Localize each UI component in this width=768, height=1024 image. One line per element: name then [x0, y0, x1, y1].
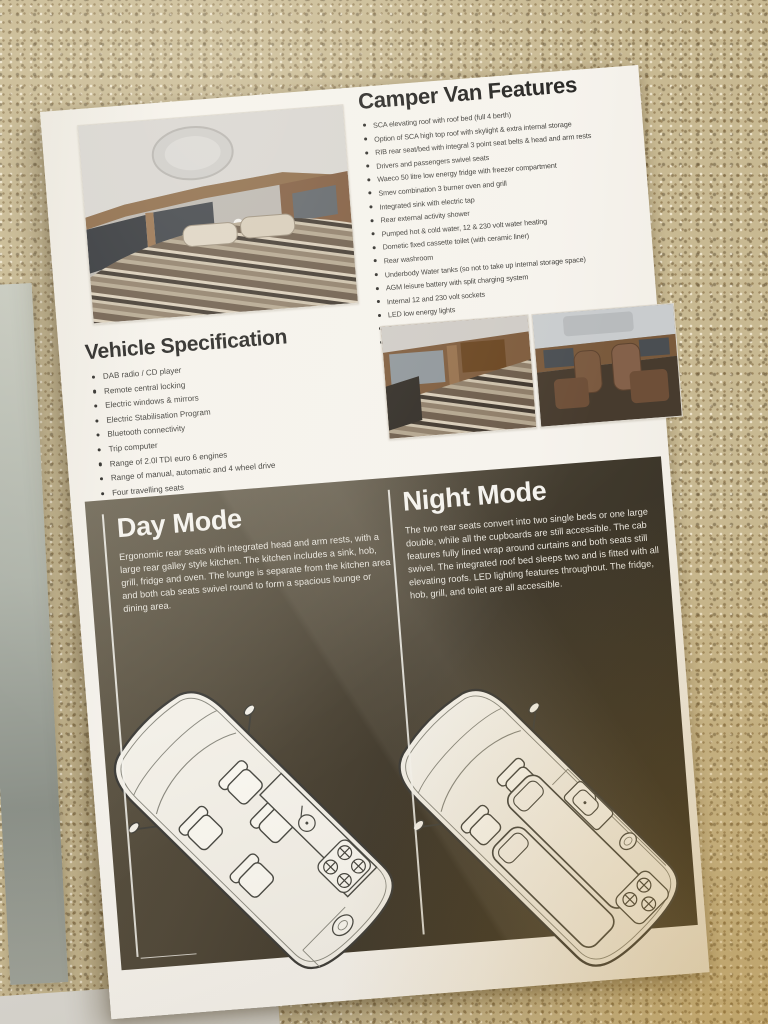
night-mode-section: Night Mode The two rear seats convert in… — [402, 467, 666, 603]
interior-bed-side-photo — [380, 314, 537, 439]
night-mode-floorplan-diagram — [354, 644, 726, 1013]
day-mode-section: Day Mode Ergonomic rear seats with integ… — [116, 492, 399, 617]
brochure-page: Camper Van Features SCA elevating roof w… — [40, 65, 710, 1019]
interior-roof-bed-photo — [77, 104, 359, 324]
pillow — [182, 222, 237, 247]
day-mode-body: Ergonomic rear seats with integrated hea… — [119, 530, 399, 617]
pillow — [240, 213, 295, 238]
van-body-outline — [99, 676, 407, 982]
adjacent-page-edge — [0, 283, 68, 985]
interior-photos-row — [380, 303, 683, 440]
day-mode-floorplan-diagram — [69, 647, 441, 1016]
countertop-background: Camper Van Features SCA elevating roof w… — [0, 0, 768, 1024]
seat-base — [554, 377, 590, 410]
interior-rear-seats-photo — [531, 303, 683, 428]
seat-base — [629, 369, 669, 404]
night-mode-body: The two rear seats convert into two sing… — [405, 505, 666, 603]
modes-panel: Day Mode Ergonomic rear seats with integ… — [85, 456, 698, 970]
